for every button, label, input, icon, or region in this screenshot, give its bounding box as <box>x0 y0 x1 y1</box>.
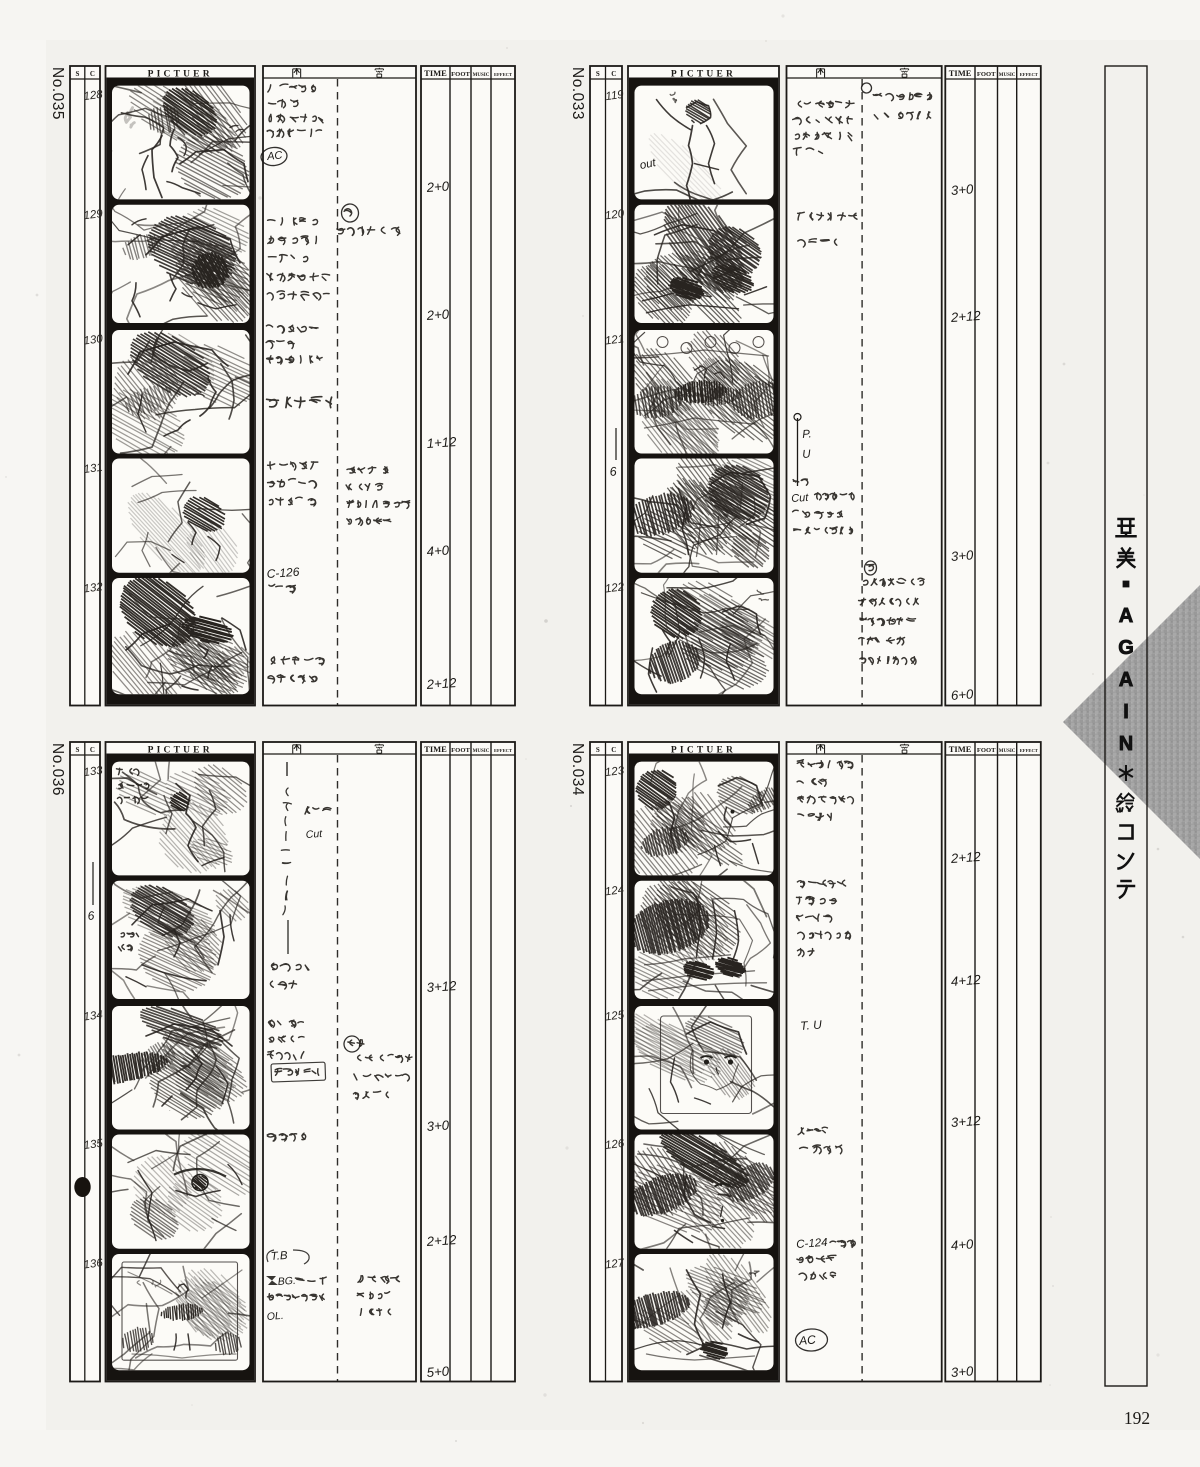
svg-text:6: 6 <box>609 464 617 479</box>
svg-text:U: U <box>802 448 812 461</box>
svg-text:S: S <box>596 746 600 754</box>
svg-text:134: 134 <box>83 1009 104 1023</box>
svg-text:3+0: 3+0 <box>950 547 974 564</box>
svg-text:3+12: 3+12 <box>426 978 457 995</box>
svg-text:TIME: TIME <box>424 68 447 78</box>
svg-text:MUSIC: MUSIC <box>999 73 1016 78</box>
svg-text:119: 119 <box>605 89 625 103</box>
svg-text:192: 192 <box>1124 1408 1150 1428</box>
svg-text:120: 120 <box>604 208 625 222</box>
svg-text:4+0: 4+0 <box>950 1236 974 1253</box>
svg-text:FOOT: FOOT <box>977 71 996 78</box>
svg-text:MUSIC: MUSIC <box>473 749 490 754</box>
svg-text:OL.: OL. <box>266 1310 284 1323</box>
svg-text:EFFECT: EFFECT <box>1020 72 1038 77</box>
svg-text:AC: AC <box>266 149 284 163</box>
svg-text:MUSIC: MUSIC <box>999 749 1016 754</box>
svg-text:121: 121 <box>604 333 625 347</box>
svg-text:124: 124 <box>604 884 625 898</box>
svg-text:No.033: No.033 <box>569 67 586 120</box>
svg-text:129: 129 <box>83 208 104 222</box>
svg-text:3+12: 3+12 <box>950 1113 981 1130</box>
svg-text:136: 136 <box>83 1257 104 1271</box>
svg-text:3+0: 3+0 <box>950 1363 974 1380</box>
svg-text:3+0: 3+0 <box>950 181 974 198</box>
svg-text:2+12: 2+12 <box>425 675 457 692</box>
svg-text:126: 126 <box>604 1138 625 1152</box>
svg-text:6+0: 6+0 <box>950 686 974 703</box>
svg-text:C: C <box>90 70 95 78</box>
svg-text:2+0: 2+0 <box>425 178 450 195</box>
svg-text:2+0: 2+0 <box>425 306 450 323</box>
svg-text:128: 128 <box>83 89 104 103</box>
svg-text:123: 123 <box>604 765 625 779</box>
svg-text:EFFECT: EFFECT <box>1020 748 1038 753</box>
svg-text:132: 132 <box>83 581 104 595</box>
svg-text:C: C <box>611 746 616 754</box>
svg-text:FOOT: FOOT <box>977 747 996 754</box>
svg-text:N: N <box>1119 733 1133 755</box>
svg-text:130: 130 <box>83 333 104 347</box>
svg-text:T. U: T. U <box>800 1017 823 1032</box>
svg-text:C: C <box>90 746 95 754</box>
svg-text:G: G <box>1118 637 1134 659</box>
svg-text:2+12: 2+12 <box>949 308 981 325</box>
svg-text:A: A <box>1119 605 1133 627</box>
svg-text:BG.: BG. <box>277 1275 296 1288</box>
svg-text:3+0: 3+0 <box>426 1117 450 1134</box>
svg-text:125: 125 <box>604 1009 625 1023</box>
svg-text:4+0: 4+0 <box>426 542 450 559</box>
svg-text:No.034: No.034 <box>569 743 586 796</box>
svg-text:S: S <box>75 70 79 78</box>
svg-text:TIME: TIME <box>949 68 972 78</box>
svg-text:C-124: C-124 <box>796 1237 828 1251</box>
svg-text:C-126: C-126 <box>266 565 300 581</box>
svg-text:4+12: 4+12 <box>950 972 981 989</box>
svg-text:5+0: 5+0 <box>426 1363 450 1380</box>
svg-text:133: 133 <box>83 765 104 779</box>
svg-text:2+12: 2+12 <box>949 849 981 866</box>
svg-text:122: 122 <box>604 581 625 595</box>
svg-text:FOOT: FOOT <box>451 71 470 78</box>
svg-text:MUSIC: MUSIC <box>473 73 490 78</box>
svg-text:EFFECT: EFFECT <box>494 72 512 77</box>
svg-text:C: C <box>611 70 616 78</box>
svg-text:S: S <box>75 746 79 754</box>
svg-text:I: I <box>1123 701 1129 723</box>
svg-text:Cut: Cut <box>305 828 323 841</box>
svg-text:TIME: TIME <box>424 744 447 754</box>
svg-text:131: 131 <box>83 462 104 476</box>
svg-text:127: 127 <box>604 1257 625 1271</box>
svg-text:No.035: No.035 <box>49 67 66 120</box>
svg-text:No.036: No.036 <box>49 743 66 796</box>
svg-text:Cut: Cut <box>791 492 810 505</box>
svg-text:AC: AC <box>797 1332 816 1348</box>
svg-text:FOOT: FOOT <box>451 747 470 754</box>
svg-text:EFFECT: EFFECT <box>494 748 512 753</box>
svg-text:135: 135 <box>83 1138 104 1152</box>
svg-text:2+12: 2+12 <box>425 1232 457 1249</box>
svg-text:A: A <box>1119 669 1133 691</box>
svg-text:1+12: 1+12 <box>426 434 457 451</box>
svg-text:TIME: TIME <box>949 744 972 754</box>
svg-text:T.B: T.B <box>270 1250 288 1263</box>
svg-text:S: S <box>596 70 600 78</box>
svg-text:P.: P. <box>802 428 812 441</box>
